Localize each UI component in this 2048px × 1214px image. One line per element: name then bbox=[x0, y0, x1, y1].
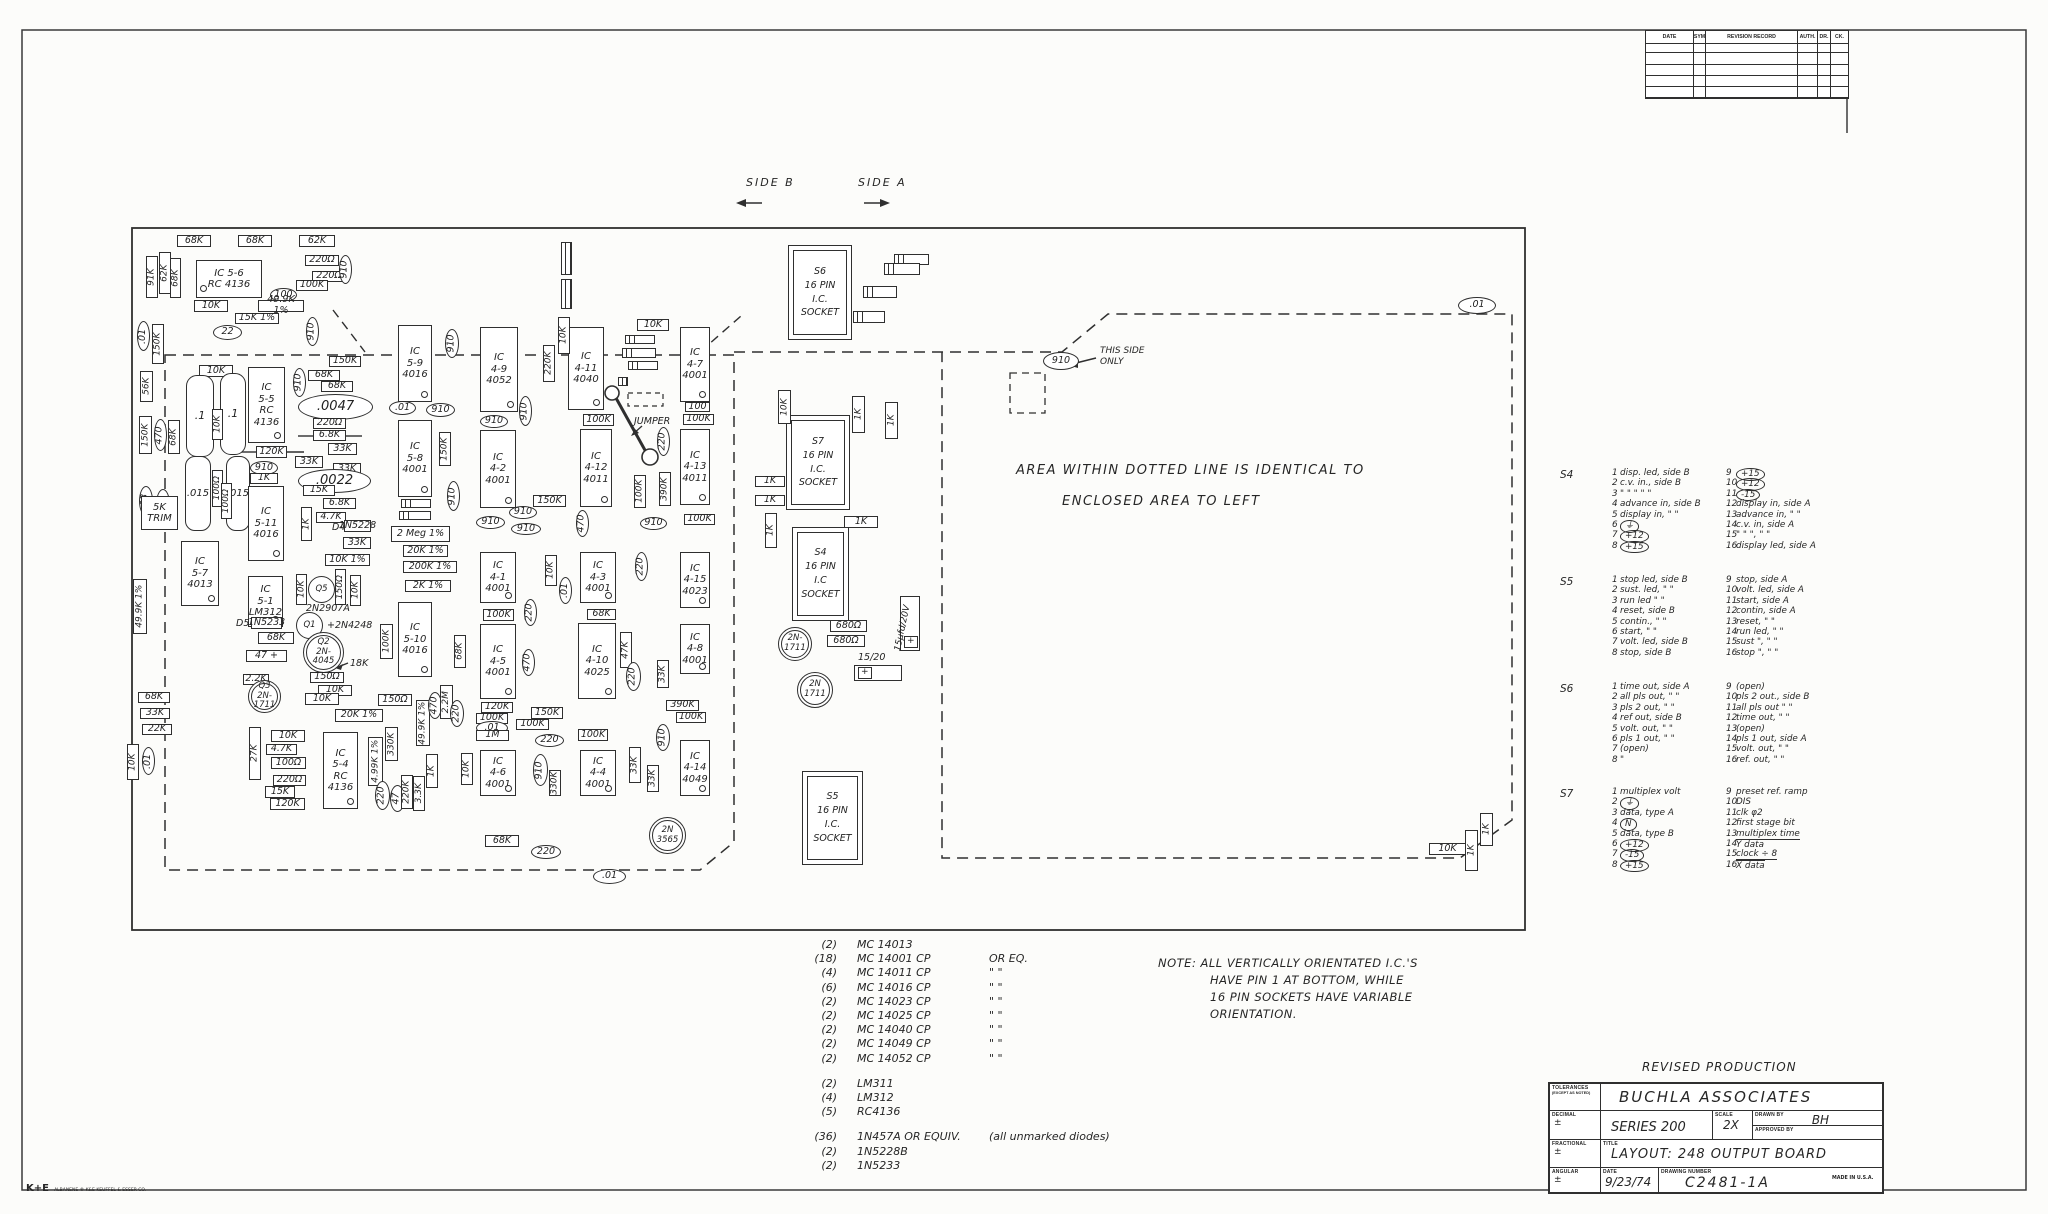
scale-value: 2X bbox=[1713, 1118, 1752, 1132]
component-resistor: 10K 1% bbox=[325, 554, 370, 566]
component-ic-chip: IC 5-10 4016 bbox=[398, 602, 432, 677]
component-capacitor: + bbox=[854, 665, 902, 681]
pin-function: 6 bbox=[1612, 839, 1618, 849]
component-ic-socket: S5 16 PIN I.C. SOCKET bbox=[802, 771, 863, 865]
component-resistor: 680Ω bbox=[830, 620, 867, 632]
approved-by-cell: APPROVED BY bbox=[1752, 1125, 1882, 1139]
component-resistor: 100K bbox=[583, 414, 614, 426]
pin-row: 4reset, side B12contin, side A bbox=[1560, 606, 1900, 616]
component-resistor: 33K bbox=[647, 765, 659, 792]
component-resistor: 68K bbox=[485, 835, 519, 847]
component-ic-chip: IC 4-3 4001 bbox=[580, 552, 616, 603]
pin-function: clk φ2 bbox=[1736, 808, 1763, 818]
pin-function: advance in, " " bbox=[1736, 510, 1801, 520]
pin-function: 2 bbox=[1612, 585, 1618, 595]
pin-function: 1 bbox=[1612, 682, 1618, 692]
component-resistor: 6.8K bbox=[323, 498, 356, 509]
pin-row: 6pls 1 out, " "14pls 1 out, side A bbox=[1560, 734, 1900, 744]
component-capacitor: .1 bbox=[220, 373, 246, 455]
pin-function: preset ref. ramp bbox=[1736, 787, 1808, 797]
component-resistor: 390K bbox=[666, 700, 699, 711]
part-quantity: (2) bbox=[795, 1037, 837, 1051]
component-part-label: 2N2907A bbox=[306, 604, 350, 615]
component-capacitor: .015 bbox=[185, 456, 211, 531]
rev-table-empty-cell bbox=[1694, 87, 1706, 98]
pin-function: data, type A bbox=[1620, 808, 1674, 818]
rev-table-empty-cell bbox=[1818, 65, 1831, 76]
pin-function: time out, side A bbox=[1620, 682, 1690, 692]
rev-table-empty-cell bbox=[1831, 76, 1848, 87]
pin-function: 8 bbox=[1612, 541, 1618, 551]
component-resistor: 1K bbox=[1465, 830, 1478, 871]
pin-row: 7-1515clock ÷ 8 bbox=[1560, 849, 1900, 859]
component-transistor: 2N 3565 bbox=[649, 817, 686, 854]
part-note: " " bbox=[989, 1037, 1003, 1051]
pin-function: contin., " " bbox=[1620, 617, 1667, 627]
component-resistor: 1K bbox=[885, 402, 898, 439]
component-component-value: 910 bbox=[447, 481, 460, 511]
part-number: 1N5233 bbox=[857, 1159, 989, 1173]
part-number: MC 14052 CP bbox=[857, 1052, 989, 1066]
dashed-mini-rect bbox=[1010, 373, 1045, 413]
component-diode bbox=[628, 361, 658, 370]
component-resistor: 4.99K 1% bbox=[368, 737, 383, 786]
component-part-label: JUMPER bbox=[634, 417, 670, 428]
component-resistor: 1N5228 bbox=[344, 520, 371, 532]
scale-label: SCALE bbox=[1713, 1111, 1752, 1118]
pin-row: 7(open)15volt. out, " " bbox=[1560, 744, 1900, 754]
rev-table-empty-cell bbox=[1706, 76, 1798, 87]
pin-function: 8 bbox=[1612, 755, 1618, 765]
connector-pinout-S4: S41disp. led, side B9+152c.v. in., side … bbox=[1560, 468, 1900, 551]
component-component-value: 220 bbox=[535, 734, 564, 747]
part-number: LM312 bbox=[857, 1091, 989, 1105]
component-ic-socket: S4 16 PIN I.C SOCKET bbox=[792, 527, 849, 621]
component-component-value: 910 bbox=[426, 403, 455, 417]
component-resistor: 33K bbox=[629, 747, 641, 783]
component-resistor: 1M bbox=[476, 730, 509, 741]
part-quantity: (2) bbox=[795, 1159, 837, 1173]
part-number: 1N5228B bbox=[857, 1145, 989, 1159]
rev-table-empty-cell bbox=[1706, 65, 1798, 76]
part-quantity: (36) bbox=[795, 1130, 837, 1144]
component-transistor: Q2 2N- 4045 bbox=[303, 632, 344, 673]
pin-row: 2c.v. in., side B10+12 bbox=[1560, 478, 1900, 488]
part-quantity: (18) bbox=[795, 952, 837, 966]
component-component-value: 220 bbox=[524, 599, 537, 626]
component-component-value: 910 bbox=[519, 396, 532, 426]
component-component-value: 910 bbox=[339, 255, 352, 284]
decimal-cell: DECIMAL ± bbox=[1550, 1110, 1600, 1139]
component-ic-chip: IC 4-14 4049 bbox=[680, 740, 710, 796]
component-resistor: 220K bbox=[401, 775, 413, 809]
pin-function: 2 bbox=[1612, 692, 1618, 702]
pin-function: +15 bbox=[1620, 860, 1649, 873]
component-resistor: 62K bbox=[299, 235, 335, 247]
component-resistor: 1K bbox=[852, 396, 865, 433]
component-resistor: 4.7K bbox=[266, 744, 297, 755]
component-resistor: 200K 1% bbox=[403, 561, 457, 573]
component-ic-chip: IC 5-5 RC 4136 bbox=[248, 367, 285, 443]
decimal-tolerance: ± bbox=[1550, 1118, 1600, 1128]
component-resistor: 1K bbox=[250, 473, 278, 484]
series-value: SERIES 200 bbox=[1601, 1111, 1712, 1135]
pin-function: 4 bbox=[1612, 499, 1618, 509]
component-resistor: 33K bbox=[343, 537, 371, 549]
component-resistor: 1K bbox=[755, 476, 785, 487]
pin-function: stop, side A bbox=[1736, 575, 1787, 585]
part-note: " " bbox=[989, 966, 1003, 980]
pin-function: volt. out, " " bbox=[1736, 744, 1789, 754]
pin-row: 1disp. led, side B9+15 bbox=[1560, 468, 1900, 478]
component-ic-chip: IC 5-4 RC 4136 bbox=[323, 732, 358, 809]
ke-logo-text: K+E bbox=[26, 1183, 49, 1194]
pin-row: 5data, type B13multiplex time bbox=[1560, 829, 1900, 839]
pin-function: +15 bbox=[1620, 541, 1649, 554]
pin-row: 8"16ref. out, " " bbox=[1560, 755, 1900, 765]
fractional-cell: FRACTIONAL ± bbox=[1550, 1139, 1600, 1167]
date-cell: DATE 9/23/74 bbox=[1600, 1167, 1658, 1192]
area-note-line1: AREA WITHIN DOTTED LINE IS IDENTICAL TO bbox=[1016, 463, 1365, 478]
pin-function: " bbox=[1620, 755, 1624, 765]
rev-table-empty-cell bbox=[1706, 53, 1798, 64]
part-number: MC 14040 CP bbox=[857, 1023, 989, 1037]
component-resistor: 10K bbox=[305, 693, 339, 705]
rev-table-empty-cell bbox=[1646, 87, 1694, 98]
component-resistor: 1K bbox=[755, 495, 785, 506]
parts-list-row: (2)1N5233 bbox=[795, 1159, 1110, 1173]
note-line: ORIENTATION. bbox=[1210, 1006, 1418, 1023]
component-component-value: 910 bbox=[445, 329, 459, 358]
component-diode bbox=[853, 311, 885, 323]
part-quantity: (5) bbox=[795, 1105, 837, 1119]
revised-production-label: REVISED PRODUCTION bbox=[1642, 1060, 1797, 1074]
pin-function: data, type B bbox=[1620, 829, 1674, 839]
component-resistor: 3.3K bbox=[413, 776, 425, 811]
component-resistor: 390K bbox=[659, 472, 671, 506]
component-capacitor: .1 bbox=[186, 375, 214, 457]
component-resistor: 6.8K bbox=[313, 430, 346, 441]
pin-function: run led " " bbox=[1620, 596, 1665, 606]
part-note: (all unmarked diodes) bbox=[989, 1130, 1110, 1144]
pin-row: 6⏚14c.v. in, side A bbox=[1560, 520, 1900, 530]
component-resistor: 100K bbox=[634, 475, 646, 508]
parts-list-row: (2)MC 14040 CP" " bbox=[795, 1023, 1110, 1037]
pin-row: 5display in, " "13advance in, " " bbox=[1560, 510, 1900, 520]
pin-function: 9 bbox=[1726, 468, 1732, 478]
rev-table-empty-cell bbox=[1694, 53, 1706, 64]
pin-function: 4 bbox=[1612, 713, 1618, 723]
pin-row: 2sust. led, " "10volt. led, side A bbox=[1560, 585, 1900, 595]
note-label: NOTE: bbox=[1158, 956, 1196, 970]
component-ic-chip: IC 5-6 RC 4136 bbox=[196, 260, 262, 298]
part-quantity: (2) bbox=[795, 938, 837, 952]
pin-function: 9 bbox=[1726, 575, 1732, 585]
rev-table-empty-cell bbox=[1706, 42, 1798, 53]
pin-function: (open) bbox=[1736, 682, 1765, 692]
part-note: " " bbox=[989, 1009, 1003, 1023]
rev-table-empty-cell bbox=[1646, 76, 1694, 87]
component-ic-chip: IC 4-12 4011 bbox=[580, 429, 612, 507]
pin-function: ref. out, " " bbox=[1736, 755, 1784, 765]
pin-row: 1stop led, side B9stop, side A bbox=[1560, 575, 1900, 585]
pin-function: sust. led, " " bbox=[1620, 585, 1674, 595]
component-part-label: +2N4248 bbox=[327, 621, 372, 632]
pin-function: first stage bit bbox=[1736, 818, 1795, 828]
component-resistor: 10K bbox=[637, 319, 669, 331]
rev-table-empty-cell bbox=[1798, 65, 1818, 76]
component-transistor: 2N- 1711 bbox=[778, 627, 812, 661]
component-resistor: 330K bbox=[385, 727, 398, 761]
part-note: " " bbox=[989, 1052, 1003, 1066]
component-resistor: 10K bbox=[194, 300, 228, 312]
pin-function: all pls out, " " bbox=[1620, 692, 1679, 702]
connector-pinout-S7: S71multiplex volt9preset ref. ramp2⏚10DI… bbox=[1560, 787, 1900, 870]
pin-function: volt. out, " " bbox=[1620, 724, 1673, 734]
pin-row: 1multiplex volt9preset ref. ramp bbox=[1560, 787, 1900, 797]
pin-function: 1 bbox=[1612, 787, 1618, 797]
part-quantity: (2) bbox=[795, 1009, 837, 1023]
component-ic-chip: IC 4-5 4001 bbox=[480, 624, 516, 699]
pin-function: 6 bbox=[1612, 627, 1618, 637]
component-component-value: 220 bbox=[626, 662, 641, 691]
component-resistor: 150K bbox=[533, 495, 566, 507]
component-component-value: 910 bbox=[656, 724, 670, 751]
pin-function: pls 1 out, " " bbox=[1620, 734, 1675, 744]
component-resistor: 1K bbox=[844, 516, 878, 528]
component-resistor: 220Ω bbox=[273, 775, 306, 786]
revision-record-table: DATESYMREVISION RECORDAUTH.DR.CK. bbox=[1645, 30, 1849, 99]
side-b-arrow bbox=[736, 199, 762, 207]
side-b-label: SIDE B bbox=[746, 176, 795, 189]
component-component-value: 910 bbox=[640, 517, 667, 530]
rev-table-empty-cell bbox=[1798, 76, 1818, 87]
pin-function: reset, side B bbox=[1620, 606, 1675, 616]
area-note-line2: ENCLOSED AREA TO LEFT bbox=[1062, 494, 1261, 509]
component-resistor: 15K bbox=[265, 786, 295, 798]
component-diode bbox=[401, 499, 431, 508]
component-ic-chip: IC 5-8 4001 bbox=[398, 420, 432, 497]
pin-row: 7volt. led, side B15sust ", " " bbox=[1560, 637, 1900, 647]
pin-function: all pls out " " bbox=[1736, 703, 1793, 713]
pin-function: 5 bbox=[1612, 617, 1618, 627]
parts-list-row: (6)MC 14016 CP" " bbox=[795, 981, 1110, 995]
component-resistor: 91K bbox=[146, 256, 158, 298]
rev-table-empty-cell bbox=[1818, 76, 1831, 87]
rev-table-empty-cell bbox=[1694, 42, 1706, 53]
approved-by-label: APPROVED BY bbox=[1753, 1126, 1882, 1133]
part-note: " " bbox=[989, 981, 1003, 995]
rev-table-empty-cell bbox=[1818, 87, 1831, 98]
pin-function: sust ", " " bbox=[1736, 637, 1778, 647]
component-resistor: 33K bbox=[295, 456, 323, 468]
pin-row: 3run led " "11start, side A bbox=[1560, 596, 1900, 606]
component-resistor: 100K bbox=[683, 414, 714, 425]
pin-function: 7 bbox=[1612, 637, 1618, 647]
component-ic-socket: S7 16 PIN I.C. SOCKET bbox=[786, 415, 850, 510]
pin-function: display in, " " bbox=[1620, 510, 1679, 520]
component-resistor: 10K bbox=[545, 555, 557, 586]
parts-list-row: (2)MC 14013 bbox=[795, 938, 1110, 952]
component-transistor: 2N 1711 bbox=[797, 672, 833, 708]
pin-row: 8stop, side B16stop ", " " bbox=[1560, 648, 1900, 658]
pin-function: DIS bbox=[1736, 797, 1751, 807]
component-component-value: 470 bbox=[154, 419, 167, 451]
component-resistor: 220K bbox=[543, 345, 555, 382]
part-number: 1N457A OR EQUIV. bbox=[857, 1130, 989, 1144]
part-quantity: (2) bbox=[795, 1077, 837, 1091]
component-diode bbox=[863, 286, 897, 298]
component-resistor: 27K bbox=[249, 727, 261, 780]
component-resistor: 68K bbox=[238, 235, 272, 247]
connector-pinout-S6: S61time out, side A9(open)2all pls out, … bbox=[1560, 682, 1900, 765]
scale-cell: SCALE 2X bbox=[1712, 1110, 1752, 1139]
component-resistor: 49.9K 1% bbox=[133, 579, 147, 634]
component-resistor: 100Ω bbox=[221, 483, 232, 519]
this-side-only-label: THIS SIDE ONLY bbox=[1100, 346, 1144, 368]
pin-function: 5 bbox=[1612, 829, 1618, 839]
angular-label: ANGULAR bbox=[1550, 1168, 1600, 1175]
pin-row: 3data, type A11clk φ2 bbox=[1560, 808, 1900, 818]
pin-row: 6start, " "14run led, " " bbox=[1560, 627, 1900, 637]
component-component-value: .01 bbox=[559, 577, 572, 604]
component-diode bbox=[561, 242, 572, 275]
component-part-label: 18K bbox=[350, 659, 368, 670]
component-resistor: 100K bbox=[578, 729, 608, 741]
pin-function: pls 2 out, " " bbox=[1620, 703, 1675, 713]
ke-logo-sub: ALBANENE ® K&E KEUFFEL & ESSER CO. bbox=[54, 1188, 146, 1193]
pin-row: 3pls 2 out, " "11all pls out " " bbox=[1560, 703, 1900, 713]
pin-function: 7 bbox=[1612, 849, 1618, 859]
parts-list-row: (18)MC 14001 CPOR EQ. bbox=[795, 952, 1110, 966]
pin-function: time out, " " bbox=[1736, 713, 1790, 723]
component-component-value: 22 bbox=[213, 325, 242, 340]
tolerances-sub: (EXCEPT AS NOTED) bbox=[1550, 1091, 1600, 1095]
component-component-value: 910 bbox=[480, 415, 508, 428]
part-number: RC4136 bbox=[857, 1105, 989, 1119]
part-number: MC 14016 CP bbox=[857, 981, 989, 995]
parts-list-row: (5)RC4136 bbox=[795, 1105, 1110, 1119]
parts-list-row: (36)1N457A OR EQUIV.(all unmarked diodes… bbox=[795, 1130, 1110, 1144]
pin-function: 7 bbox=[1612, 530, 1618, 540]
component-resistor: 1N5233 bbox=[251, 617, 282, 629]
part-quantity: (4) bbox=[795, 966, 837, 980]
component-resistor: 68K bbox=[258, 632, 294, 644]
pin-row: 2all pls out, " "10pls 2 out., side B bbox=[1560, 692, 1900, 702]
component-transistor: Q3 2N- 1711 bbox=[248, 680, 281, 713]
component-resistor: 100K bbox=[296, 280, 328, 291]
pin-row: 2⏚10DIS bbox=[1560, 797, 1900, 807]
component-resistor: 33K bbox=[140, 708, 170, 719]
component-resistor: 150K bbox=[329, 356, 361, 367]
pin-function: 3 bbox=[1612, 489, 1618, 499]
rev-table-empty-cell bbox=[1798, 53, 1818, 64]
component-resistor: 68K bbox=[587, 609, 616, 620]
pin-function: 9 bbox=[1726, 682, 1732, 692]
pin-function: 1 bbox=[1612, 575, 1618, 585]
component-component-value: 220 bbox=[450, 700, 464, 727]
component-ic-chip: IC 4-6 4001 bbox=[480, 750, 516, 796]
component-ic-chip: IC 4-7 4001 bbox=[680, 327, 710, 402]
component-resistor: 120K bbox=[270, 798, 305, 810]
parts-list-row: (2)MC 14023 CP" " bbox=[795, 995, 1110, 1009]
pin-function: volt. led, side A bbox=[1736, 585, 1804, 595]
part-number: MC 14023 CP bbox=[857, 995, 989, 1009]
component-component-value: 220 bbox=[635, 552, 648, 581]
pin-function: 5 bbox=[1612, 510, 1618, 520]
component-resistor: 1K bbox=[426, 754, 438, 788]
pin-function: 8 bbox=[1612, 860, 1618, 870]
part-number: MC 14013 bbox=[857, 938, 989, 952]
date-label: DATE bbox=[1601, 1168, 1658, 1175]
pin-function: pls 2 out., side B bbox=[1736, 692, 1809, 702]
component-resistor: 100 bbox=[685, 402, 710, 412]
pin-function: 4 bbox=[1612, 606, 1618, 616]
pin-function: pls 1 out, side A bbox=[1736, 734, 1807, 744]
component-diode bbox=[399, 511, 431, 520]
pin-function: " " ", " " bbox=[1736, 530, 1770, 540]
component-diode bbox=[561, 279, 572, 309]
rev-table-empty-cell bbox=[1831, 65, 1848, 76]
component-ic-chip: IC 5-11 4016 bbox=[248, 486, 284, 561]
part-note: " " bbox=[989, 1023, 1003, 1037]
pin-function: start, side A bbox=[1736, 596, 1789, 606]
component-resistor: 680Ω bbox=[827, 635, 865, 647]
component-ic-chip: IC 4-13 4011 bbox=[680, 429, 710, 505]
rev-table-empty-cell bbox=[1818, 42, 1831, 53]
component-ic-chip: IC 4-11 4040 bbox=[568, 327, 604, 410]
component-resistor: 10K bbox=[350, 575, 361, 606]
part-quantity: (2) bbox=[795, 995, 837, 1009]
component-resistor: 10K bbox=[296, 574, 307, 605]
component-ic-chip: IC 5-7 4013 bbox=[181, 541, 219, 606]
component-resistor: 100K bbox=[380, 624, 393, 659]
date-value: 9/23/74 bbox=[1601, 1175, 1658, 1189]
rev-table-empty-cell bbox=[1646, 65, 1694, 76]
component-ic-chip: IC 5-9 4016 bbox=[398, 325, 432, 402]
parts-list-row: (2)MC 14025 CP" " bbox=[795, 1009, 1110, 1023]
pin-function: volt. led, side B bbox=[1620, 637, 1688, 647]
pin-function: display in, side A bbox=[1736, 499, 1810, 509]
ke-logo: K+E ALBANENE ® K&E KEUFFEL & ESSER CO. bbox=[26, 1176, 146, 1195]
component-component-value: .01 bbox=[1458, 297, 1496, 314]
pin-function: contin, side A bbox=[1736, 606, 1796, 616]
connector-pinout-S5: S51stop led, side B9stop, side A2sust. l… bbox=[1560, 575, 1900, 658]
component-diode bbox=[622, 348, 656, 358]
component-resistor: 33K bbox=[328, 443, 357, 455]
component-resistor: 100K bbox=[516, 719, 549, 730]
rev-table-empty-cell bbox=[1694, 65, 1706, 76]
part-quantity: (2) bbox=[795, 1145, 837, 1159]
component-resistor: 68K bbox=[138, 692, 170, 703]
pin-function: 2 bbox=[1612, 478, 1618, 488]
component-resistor: 10K bbox=[212, 409, 223, 440]
component-resistor: 20K 1% bbox=[335, 709, 383, 722]
part-quantity: (6) bbox=[795, 981, 837, 995]
rev-table-empty-cell bbox=[1646, 42, 1694, 53]
pin-function: 2 bbox=[1612, 797, 1618, 807]
component-resistor: 150Ω bbox=[335, 569, 346, 605]
component-resistor: 68K bbox=[168, 420, 180, 454]
component-resistor: 100Ω bbox=[271, 757, 306, 769]
component-diode bbox=[618, 377, 627, 386]
component-resistor: 56K bbox=[140, 371, 153, 402]
component-resistor: 150Ω bbox=[310, 672, 344, 683]
pin-function: 1 bbox=[1612, 468, 1618, 478]
rev-table-empty-cell bbox=[1706, 87, 1798, 98]
component-component-value: .01 bbox=[593, 869, 626, 884]
tolerances-cell: TOLERANCES (EXCEPT AS NOTED) bbox=[1550, 1084, 1600, 1110]
